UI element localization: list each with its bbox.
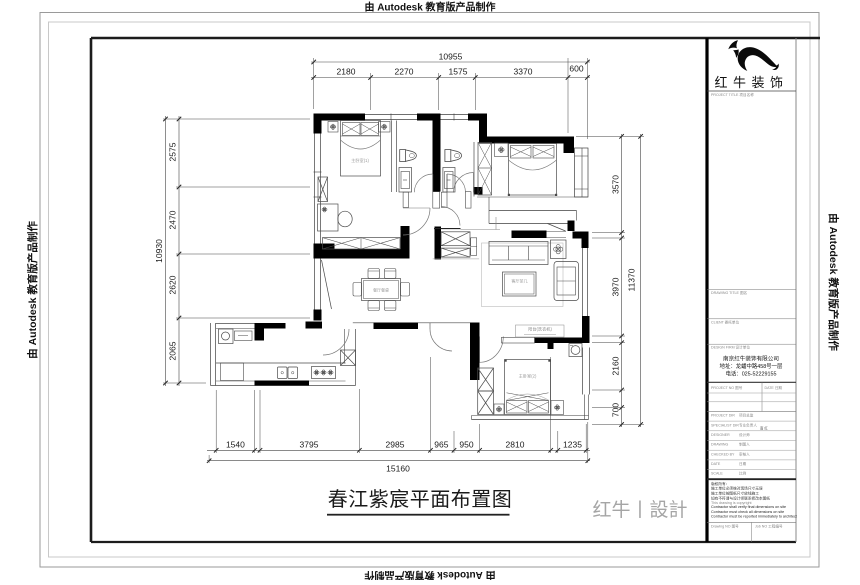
svg-text:PROJECT NO 图号: PROJECT NO 图号 <box>711 385 743 390</box>
svg-text:DESIGN FIRM 设计单位: DESIGN FIRM 设计单位 <box>711 345 750 350</box>
svg-text:2470: 2470 <box>168 210 178 229</box>
svg-text:DRAWING TITLE 图名: DRAWING TITLE 图名 <box>711 290 748 295</box>
svg-text:Contractor must be reported im: Contractor must be reported immediately … <box>711 514 797 518</box>
svg-text:PROJECT TITLE 项目名称: PROJECT TITLE 项目名称 <box>711 92 754 97</box>
svg-text:2065: 2065 <box>168 341 178 360</box>
svg-text:Contractor must check all dime: Contractor must check all dimensions on … <box>711 510 784 514</box>
svg-text:专业负责人: 专业负责人 <box>739 422 757 427</box>
svg-text:DATE 日期: DATE 日期 <box>765 385 783 390</box>
svg-text:项目总监: 项目总监 <box>739 413 754 418</box>
svg-text:如有不符请与设计师联系修改本图纸: 如有不符请与设计师联系修改本图纸 <box>711 495 770 500</box>
svg-text:主卧室(2): 主卧室(2) <box>519 373 537 380</box>
svg-text:审核人: 审核人 <box>739 451 750 456</box>
svg-text:2180: 2180 <box>337 67 356 77</box>
svg-text:15160: 15160 <box>386 464 410 474</box>
svg-text:3570: 3570 <box>611 175 621 194</box>
svg-text:主卧室(1): 主卧室(1) <box>351 157 369 164</box>
svg-text:阳台(洗衣机): 阳台(洗衣机) <box>528 326 552 333</box>
svg-text:2575: 2575 <box>168 142 178 161</box>
svg-text:11370: 11370 <box>627 268 637 291</box>
svg-text:CHECKED BY: CHECKED BY <box>711 452 735 456</box>
svg-text:2160: 2160 <box>611 356 621 375</box>
svg-text:餐厅餐桌: 餐厅餐桌 <box>373 287 389 293</box>
svg-text:施工单位按图纸尺寸放线施工: 施工单位按图纸尺寸放线施工 <box>711 491 759 496</box>
svg-text:SPECIALIST DIR: SPECIALIST DIR <box>711 423 739 427</box>
svg-text:700: 700 <box>611 403 621 417</box>
svg-text:红牛装饰: 红牛装饰 <box>714 75 788 90</box>
svg-text:3370: 3370 <box>514 67 533 77</box>
svg-text:2810: 2810 <box>506 440 525 450</box>
svg-text:PROJECT DIR: PROJECT DIR <box>711 414 735 418</box>
svg-text:春江紫宸平面布置图: 春江紫宸平面布置图 <box>328 488 513 511</box>
svg-text:1540: 1540 <box>226 440 245 450</box>
svg-text:965: 965 <box>434 440 448 450</box>
svg-text:CLIENT 委托单位: CLIENT 委托单位 <box>711 319 739 324</box>
svg-text:制图人: 制图人 <box>739 442 750 447</box>
svg-text:DESIGNER: DESIGNER <box>711 433 730 437</box>
svg-text:南京红牛装饰有限公司: 南京红牛装饰有限公司 <box>723 355 779 363</box>
svg-text:红牛丨設計: 红牛丨設計 <box>593 499 688 521</box>
svg-text:比例: 比例 <box>739 471 747 476</box>
svg-text:Drawing NO 图号: Drawing NO 图号 <box>711 524 739 529</box>
svg-text:DRAWING: DRAWING <box>711 443 728 447</box>
svg-text:3795: 3795 <box>300 440 319 450</box>
svg-text:950: 950 <box>459 440 473 450</box>
svg-text:2620: 2620 <box>168 275 178 294</box>
svg-text:Contractor shall verify final: Contractor shall verify final dimensions… <box>711 505 786 509</box>
svg-text:由 Autodesk 教育版产品制作: 由 Autodesk 教育版产品制作 <box>364 1 495 14</box>
svg-text:1235: 1235 <box>563 440 582 450</box>
svg-text:地址：龙蟠中路458号一层: 地址：龙蟠中路458号一层 <box>720 362 784 370</box>
svg-text:2985: 2985 <box>386 440 405 450</box>
svg-text:电话：025-52229155: 电话：025-52229155 <box>726 370 777 378</box>
svg-text:10930: 10930 <box>154 239 164 263</box>
svg-text:由 Autodesk 教育版产品制作: 由 Autodesk 教育版产品制作 <box>827 213 840 351</box>
svg-text:Job NO 工程编号: Job NO 工程编号 <box>755 524 783 529</box>
svg-text:DATE: DATE <box>711 462 721 466</box>
svg-text:设计师: 设计师 <box>739 432 750 437</box>
svg-text:客厅茶几: 客厅茶几 <box>512 278 528 284</box>
svg-text:由 Autodesk 教育版产品制作: 由 Autodesk 教育版产品制作 <box>26 221 39 359</box>
svg-text:1575: 1575 <box>449 67 468 77</box>
svg-text:南 红: 南 红 <box>760 425 768 430</box>
svg-text:3970: 3970 <box>611 277 621 296</box>
svg-text:This drawing is copyright: This drawing is copyright <box>711 501 752 505</box>
svg-text:版权所有：: 版权所有： <box>711 481 729 486</box>
svg-text:600: 600 <box>569 64 583 74</box>
svg-text:由 Autodesk 教育版产品制作: 由 Autodesk 教育版产品制作 <box>364 569 495 580</box>
svg-text:SCALE: SCALE <box>711 472 723 476</box>
svg-text:施工单位必须核对现场尺寸无误: 施工单位必须核对现场尺寸无误 <box>711 486 763 491</box>
svg-text:2270: 2270 <box>395 67 414 77</box>
svg-text:日期: 日期 <box>739 461 747 466</box>
svg-text:10955: 10955 <box>439 52 463 62</box>
